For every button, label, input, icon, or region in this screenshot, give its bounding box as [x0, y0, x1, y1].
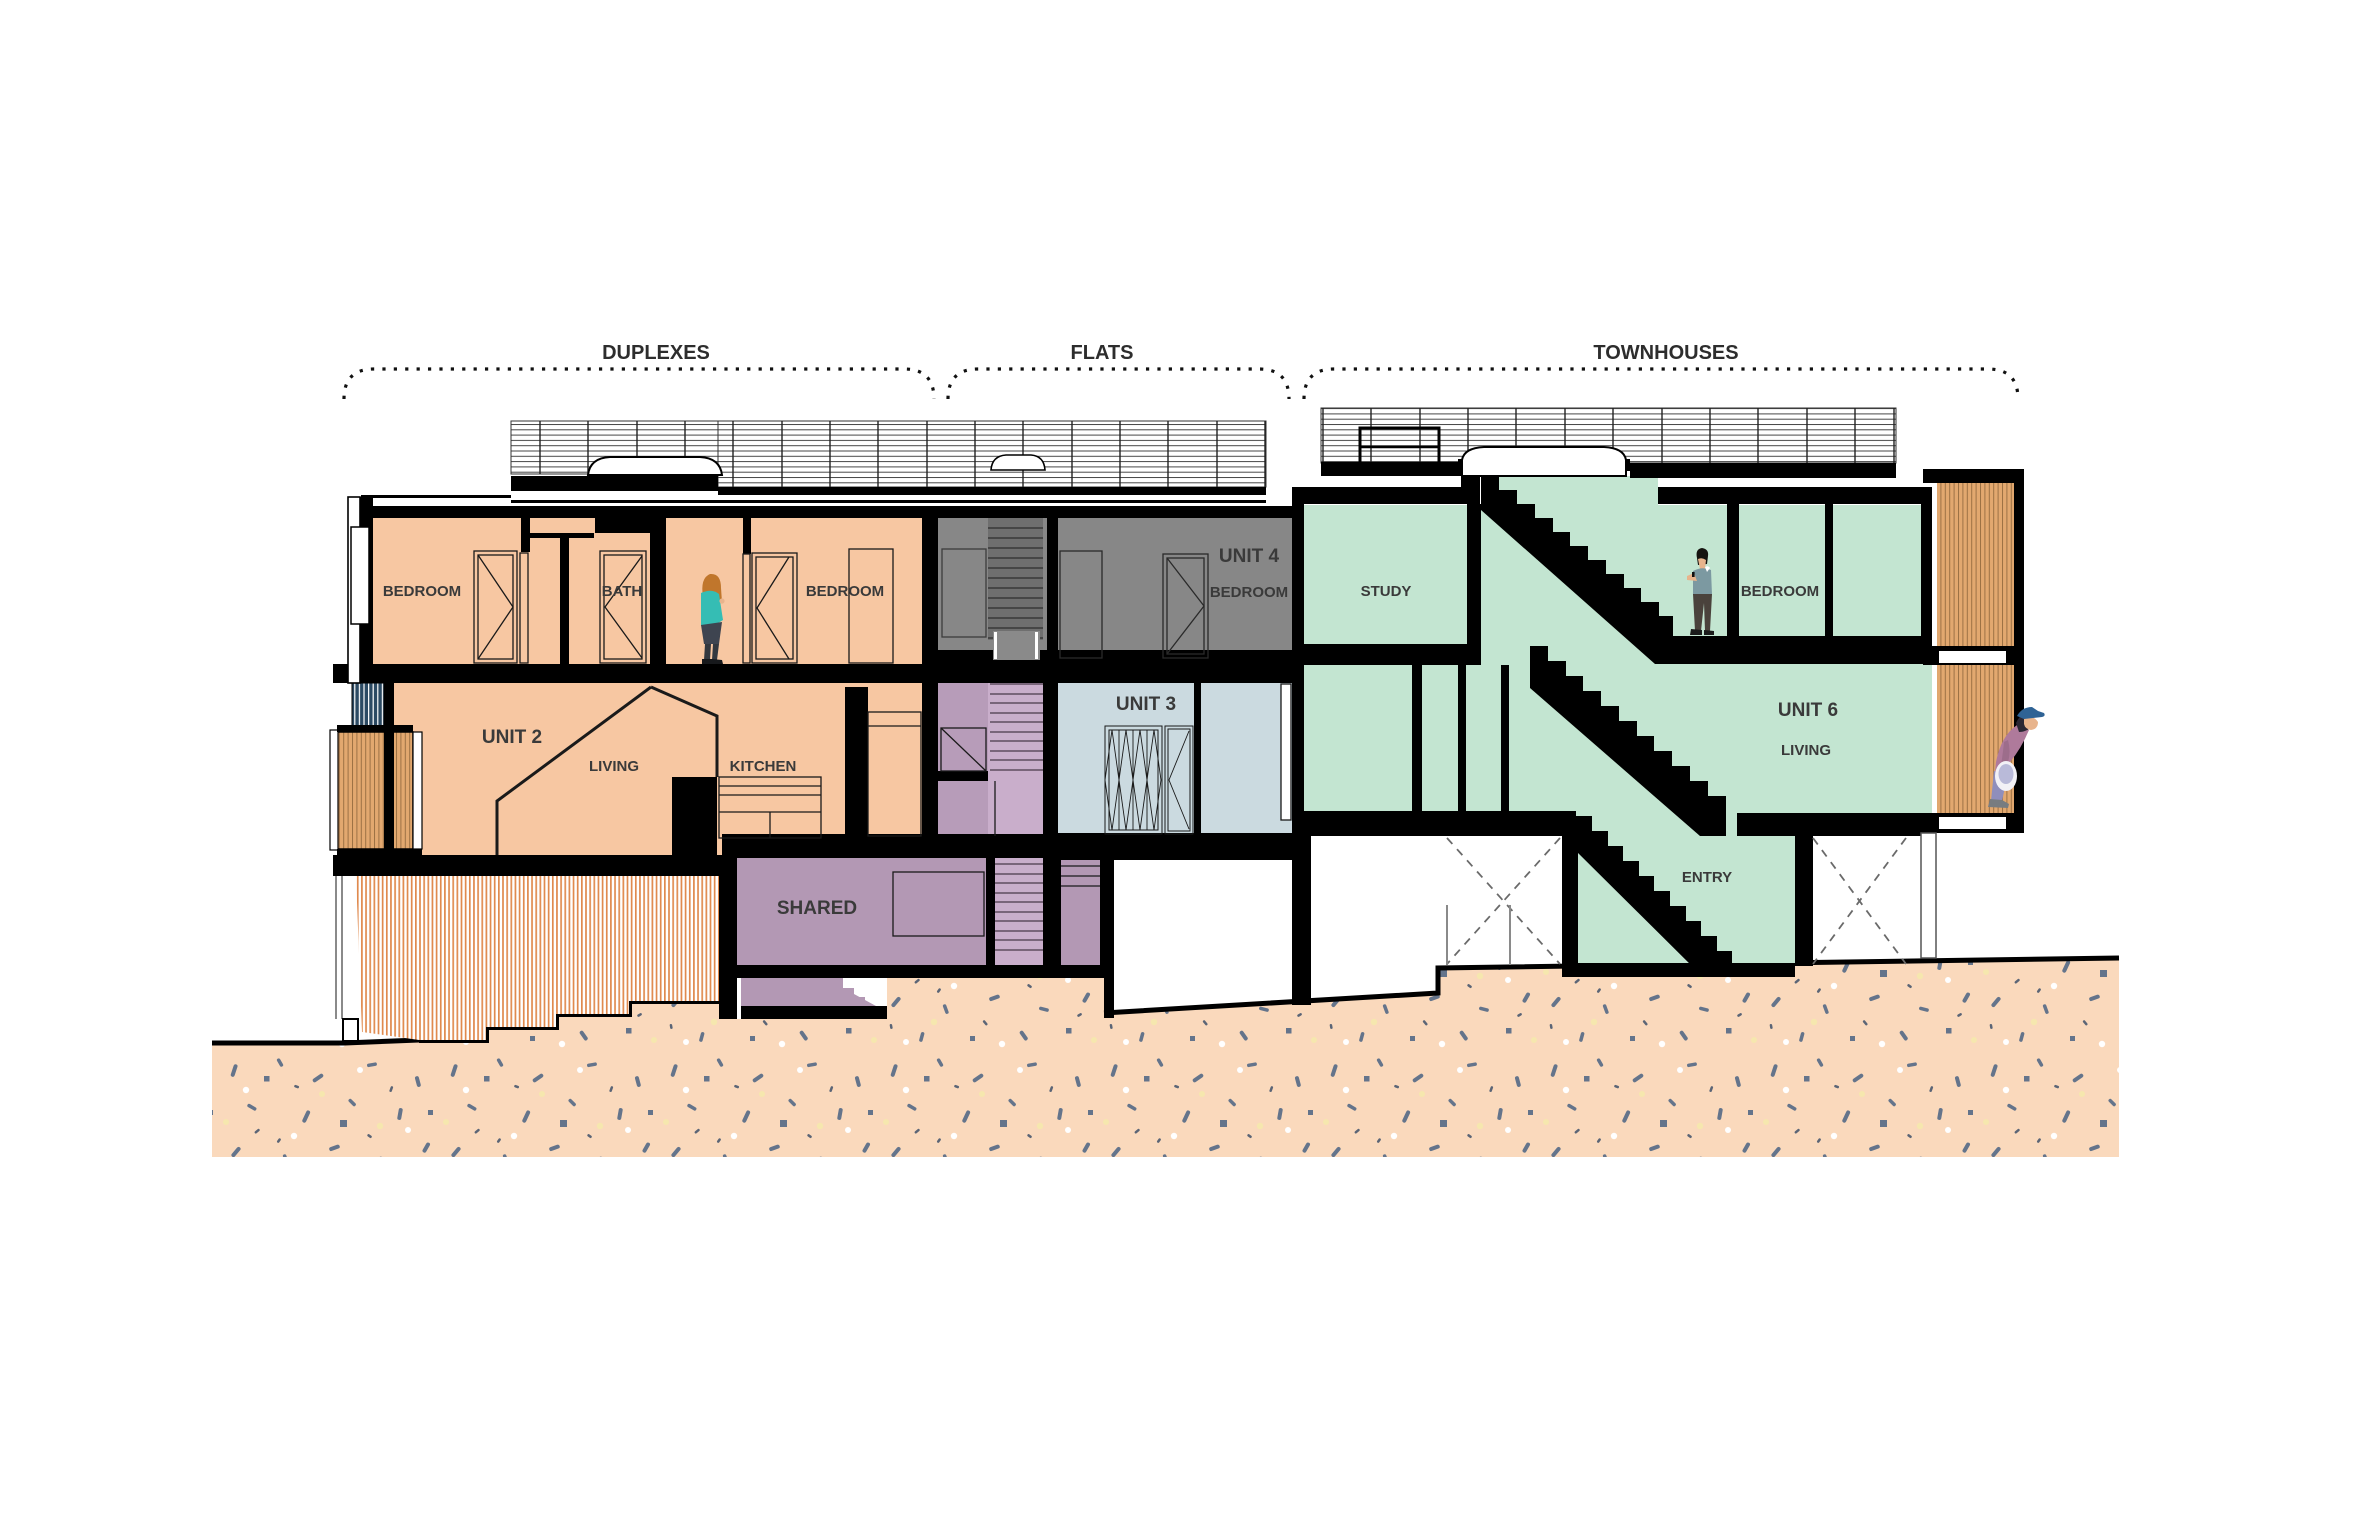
svg-text:BEDROOM: BEDROOM — [1741, 583, 1819, 600]
svg-text:LIVING: LIVING — [1781, 742, 1831, 759]
svg-text:UNIT 4: UNIT 4 — [1219, 546, 1280, 567]
svg-text:STUDY: STUDY — [1361, 583, 1412, 600]
svg-text:FLATS: FLATS — [1071, 342, 1134, 364]
svg-text:SHARED: SHARED — [777, 898, 857, 919]
svg-text:KITCHEN: KITCHEN — [730, 758, 797, 775]
svg-text:BEDROOM: BEDROOM — [1210, 584, 1288, 601]
svg-text:ENTRY: ENTRY — [1682, 869, 1732, 886]
svg-text:UNIT 3: UNIT 3 — [1116, 694, 1176, 715]
svg-text:BEDROOM: BEDROOM — [383, 583, 461, 600]
svg-text:BATH: BATH — [602, 583, 643, 600]
svg-text:LIVING: LIVING — [589, 758, 639, 775]
svg-text:DUPLEXES: DUPLEXES — [602, 342, 710, 364]
svg-text:TOWNHOUSES: TOWNHOUSES — [1593, 342, 1738, 364]
svg-text:UNIT 2: UNIT 2 — [482, 727, 542, 748]
svg-text:UNIT 6: UNIT 6 — [1778, 700, 1838, 721]
svg-text:BEDROOM: BEDROOM — [806, 583, 884, 600]
